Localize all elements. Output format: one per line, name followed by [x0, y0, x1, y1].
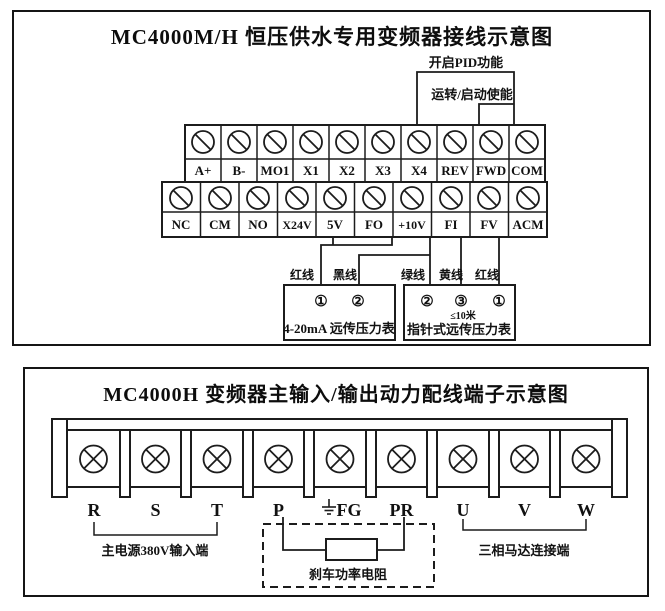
terminal-label: A+ — [195, 163, 212, 178]
brake-wire-p — [283, 517, 326, 550]
terminal-label-U: U — [457, 500, 470, 520]
gauge-pointer-box: ② ③ ① ≤10米 指针式远传压力表 — [404, 285, 515, 340]
wire-label: 红线 — [475, 267, 499, 282]
gauge-pointer-label: 指针式远传压力表 — [407, 322, 512, 337]
power-wiring-drawing: MC4000H 变频器主输入/输出动力配线端子示意图 — [25, 369, 647, 595]
terminal-label: FWD — [476, 163, 506, 178]
power-terminal-block — [52, 419, 627, 497]
gauge-terminal-2: ② — [351, 294, 364, 310]
terminal-label-S: S — [150, 500, 160, 520]
wiring-diagram-canvas: MC4000M/H 恒压供水专用变频器接线示意图 开启PID功能 运转/启动使能 — [0, 0, 665, 611]
wire-label: 黑线 — [333, 267, 357, 282]
terminal-label: X2 — [339, 163, 355, 178]
terminal-label: NC — [172, 217, 191, 232]
terminal-label: +10V — [398, 218, 426, 232]
terminal-label-PR: PR — [390, 500, 415, 520]
terminal-label: FI — [445, 217, 458, 232]
brake-resistor — [326, 539, 377, 560]
brake-resistor-group: 刹车功率电阻 — [263, 517, 434, 587]
terminal-label: COM — [511, 163, 543, 178]
pid-enable-label: 开启PID功能 — [429, 55, 503, 70]
gauge-terminal-1: ① — [314, 294, 327, 310]
terminal-label-W: W — [577, 500, 595, 520]
gauge-420ma-label: 4-20mA 远传压力表 — [283, 321, 396, 336]
terminal-label: X1 — [303, 163, 319, 178]
motor-label: 三相马达连接端 — [478, 543, 569, 558]
top-panel-title: MC4000M/H 恒压供水专用变频器接线示意图 — [111, 25, 553, 49]
terminal-label: MO1 — [261, 163, 290, 178]
terminal-label: X24V — [282, 218, 312, 232]
motor-bracket: 三相马达连接端 — [463, 519, 586, 558]
lower-terminal-strip: NC CM NO X24V 5V FO +10V FI FV ACM — [162, 182, 547, 237]
terminal-label: NO — [248, 217, 268, 232]
wire-label: 黄线 — [439, 267, 463, 282]
terminal-label-R: R — [88, 500, 102, 520]
terminal-label: ACM — [512, 217, 543, 232]
terminal-label: X4 — [411, 163, 427, 178]
run-enable-label: 运转/启动使能 — [431, 87, 513, 102]
gauge-terminal-2: ② — [420, 294, 433, 310]
terminal-label: B- — [233, 163, 246, 178]
wire-label: 绿线 — [401, 267, 425, 282]
control-wiring-panel: MC4000M/H 恒压供水专用变频器接线示意图 开启PID功能 运转/启动使能 — [12, 10, 651, 346]
power-input-bracket: 主电源380V输入端 — [94, 522, 217, 558]
ground-icon — [322, 499, 336, 514]
bottom-panel-title: MC4000H 变频器主输入/输出动力配线端子示意图 — [103, 382, 568, 406]
gauge-420ma-box: ① ② 4-20mA 远传压力表 — [283, 285, 396, 340]
terminal-label: REV — [441, 163, 469, 178]
brake-resistor-label: 刹车功率电阻 — [309, 567, 387, 582]
terminal-label-V: V — [518, 500, 531, 520]
terminal-label: 5V — [327, 217, 344, 232]
wire-label: 红线 — [290, 267, 314, 282]
power-wiring-panel: MC4000H 变频器主输入/输出动力配线端子示意图 — [23, 367, 649, 597]
upper-terminal-strip: A+ B- MO1 X1 X2 X3 X4 REV FWD COM — [185, 125, 545, 182]
block-left-leg — [52, 419, 67, 497]
terminal-label: FV — [480, 217, 498, 232]
terminal-label: FO — [365, 217, 383, 232]
cable-length-note: ≤10米 — [450, 309, 476, 322]
control-wiring-drawing: MC4000M/H 恒压供水专用变频器接线示意图 开启PID功能 运转/启动使能 — [14, 12, 649, 344]
power-terminal-labels: R S T P FG PR U V W — [88, 499, 596, 520]
terminal-label: CM — [209, 217, 231, 232]
terminal-label-FG: FG — [337, 500, 362, 520]
power-input-label: 主电源380V输入端 — [102, 543, 209, 558]
run-enable-wire — [479, 104, 514, 125]
gauge-terminal-1: ① — [492, 294, 505, 310]
brake-wire-pr — [377, 517, 404, 550]
terminal-label-T: T — [211, 500, 223, 520]
block-right-leg — [612, 419, 627, 497]
terminal-label: X3 — [375, 163, 391, 178]
gauge-terminal-3: ③ — [454, 294, 467, 310]
